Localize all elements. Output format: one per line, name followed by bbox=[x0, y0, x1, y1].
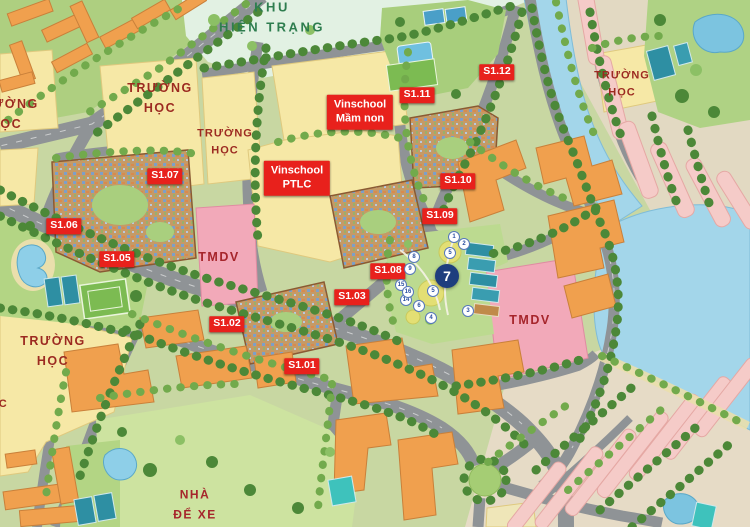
marker-s1-11[interactable]: S1.11 bbox=[400, 87, 435, 103]
marker-s1-03[interactable]: S1.03 bbox=[334, 289, 369, 305]
poi-marker: 9 bbox=[404, 263, 416, 275]
poi-marker: 3 bbox=[462, 305, 474, 317]
marker-s1-02[interactable]: S1.02 bbox=[209, 316, 244, 332]
marker-s1-05[interactable]: S1.05 bbox=[99, 251, 134, 267]
poi-marker: 16 bbox=[402, 286, 414, 298]
poi-marker: 6 bbox=[413, 300, 425, 312]
marker-s1-10[interactable]: S1.10 bbox=[440, 173, 475, 189]
master-plan-map: KHU HIỆN TRẠNG TRƯỜNG HỌC TRƯỜNG HỌC TRƯ… bbox=[0, 0, 750, 527]
poi-marker: 5 bbox=[427, 285, 439, 297]
school-label-bottom-partial: HỌC bbox=[0, 396, 8, 413]
poi-marker: 2 bbox=[458, 238, 470, 250]
marker-s1-09[interactable]: S1.09 bbox=[422, 208, 457, 224]
marker-s1-07[interactable]: S1.07 bbox=[147, 168, 182, 184]
marker-s1-12[interactable]: S1.12 bbox=[479, 64, 514, 80]
marker-vinschool-ptlc[interactable]: Vinschool PTLC bbox=[264, 161, 330, 196]
school-label-left-partial: TRƯỜNG HỌC bbox=[0, 94, 39, 134]
numbered-badge-7[interactable]: 7 bbox=[435, 264, 459, 288]
poi-marker: 8 bbox=[408, 251, 420, 263]
zone-label-khu-hien-trang: KHU HIỆN TRẠNG bbox=[219, 0, 325, 37]
school-label-top-1: TRƯỜNG HỌC bbox=[127, 78, 192, 118]
school-label-top-2: TRƯỜNG HỌC bbox=[197, 126, 253, 159]
marker-s1-01[interactable]: S1.01 bbox=[284, 358, 319, 374]
clubhouse-pool bbox=[693, 14, 744, 52]
school-label-top-right: TRƯỜNG HỌC bbox=[594, 68, 650, 101]
school-label-bottom-left: TRƯỜNG HỌC bbox=[20, 331, 85, 371]
poi-marker: 4 bbox=[425, 312, 437, 324]
parking-garage-label: NHÀ ĐỂ XE bbox=[173, 485, 217, 526]
tmdv-label-right: TMDV bbox=[509, 313, 550, 327]
marker-s1-06[interactable]: S1.06 bbox=[46, 218, 81, 234]
marker-s1-08[interactable]: S1.08 bbox=[370, 263, 405, 279]
marker-vinschool-mamnon[interactable]: Vinschool Mầm non bbox=[327, 95, 393, 130]
tmdv-label-left: TMDV bbox=[198, 250, 239, 264]
poi-marker: 5 bbox=[444, 247, 456, 259]
